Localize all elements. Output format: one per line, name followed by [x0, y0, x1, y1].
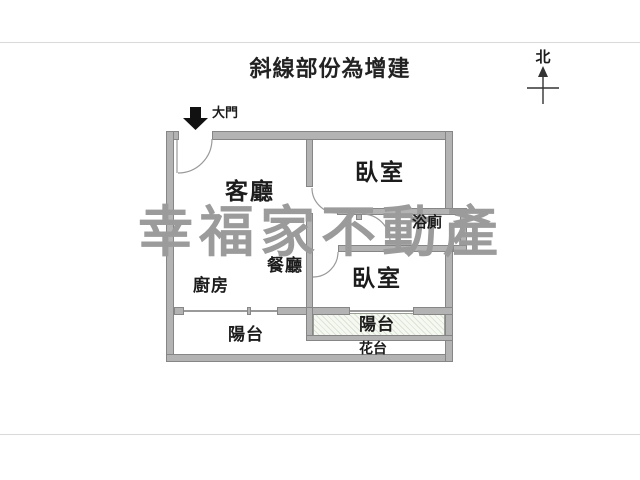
room-label-bedroom2: 臥室 — [329, 266, 425, 291]
room-label-bathroom: 浴廁 — [397, 215, 457, 232]
room-label-kitchen: 廚房 — [181, 277, 241, 296]
room-label-balcony-left: 陽台 — [216, 326, 276, 345]
room-label-flowerbed: 花台 — [343, 341, 403, 356]
room-label-dining: 餐廳 — [255, 257, 315, 276]
floor-plan-page: { "header": { "title": "斜線部份為增建" }, "com… — [0, 0, 640, 480]
room-label-living: 客廳 — [202, 179, 298, 204]
frame-bottom-line — [0, 434, 640, 435]
entrance-label: 大門 — [212, 106, 238, 120]
entrance-arrow-icon — [180, 106, 212, 132]
room-label-bedroom1: 臥室 — [332, 160, 428, 185]
room-label-balcony-right: 陽台 — [347, 316, 407, 335]
north-compass-icon — [520, 60, 568, 110]
plan-title: 斜線部份為增建 — [230, 57, 430, 81]
frame-top-line — [0, 42, 640, 43]
watermark-text: 幸福家不動產 — [138, 205, 504, 260]
